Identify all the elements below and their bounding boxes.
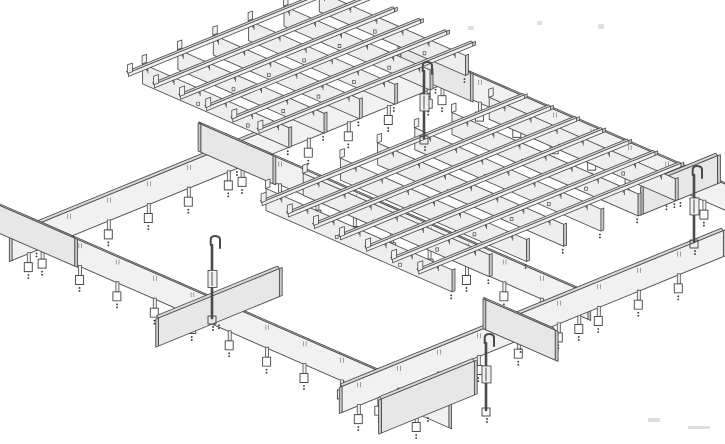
figure	[0, 0, 725, 444]
ceiling-system-drawing	[0, 0, 725, 444]
page	[0, 0, 725, 444]
